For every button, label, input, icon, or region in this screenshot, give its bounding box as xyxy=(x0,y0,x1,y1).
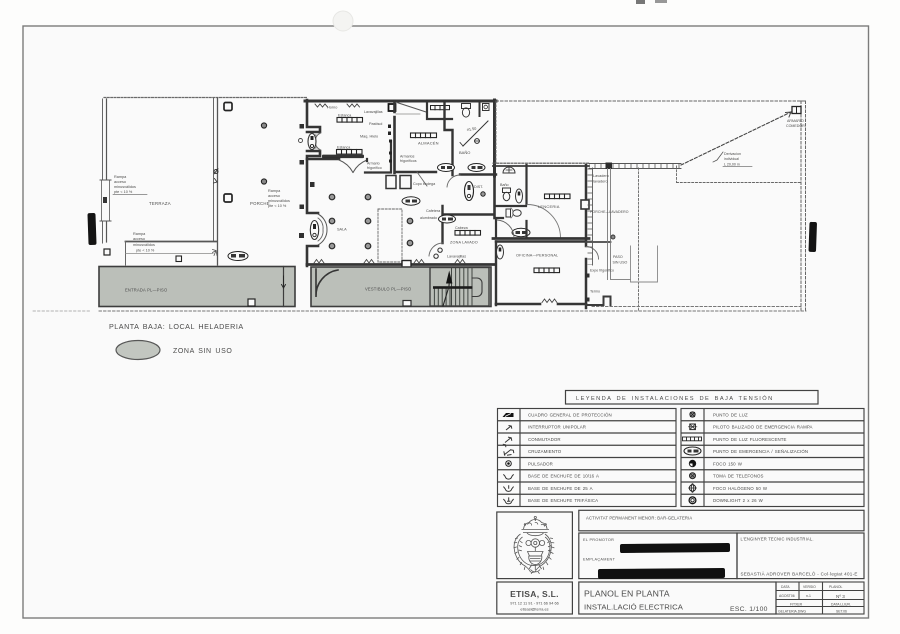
svg-text:INTERRUPTOR UNIPOLAR: INTERRUPTOR UNIPOLAR xyxy=(528,425,586,430)
svg-text:Rampa: Rampa xyxy=(114,175,127,179)
svg-text:acceso: acceso xyxy=(114,180,126,184)
svg-text:pte < 10 %: pte < 10 % xyxy=(268,204,287,208)
svg-text:ZONA SIN USO: ZONA SIN USO xyxy=(173,348,232,355)
svg-text:971 12 11 91 - 971 66 94 66: 971 12 11 91 - 971 66 94 66 xyxy=(510,600,559,605)
svg-text:FOCO HALÓGENO 50 W: FOCO HALÓGENO 50 W xyxy=(713,486,768,491)
svg-text:SEBASTIÀ ADROVER BARCELÓ - Col: SEBASTIÀ ADROVER BARCELÓ - Col·legiat 40… xyxy=(741,571,858,577)
svg-text:ACTIVITAT PERMANENT MENOR: BAR: ACTIVITAT PERMANENT MENOR: BAR-GELATERIA xyxy=(586,516,692,521)
svg-text:PULSADOR: PULSADOR xyxy=(528,461,553,466)
svg-text:CRUZAMIENTO: CRUZAMIENTO xyxy=(528,449,562,454)
svg-text:minusválidos: minusválidos xyxy=(114,185,136,189)
svg-text:DATA: DATA xyxy=(781,585,790,589)
svg-text:SET.06: SET.06 xyxy=(836,610,847,614)
svg-text:BAÑO: BAÑO xyxy=(459,150,470,155)
svg-text:Termo: Termo xyxy=(590,290,600,294)
svg-text:ESC. 1/100: ESC. 1/100 xyxy=(730,606,768,613)
svg-text:Armario: Armario xyxy=(367,162,380,166)
svg-text:ARMARIO: ARMARIO xyxy=(787,119,804,123)
svg-text:ENTRADA PL—PISO: ENTRADA PL—PISO xyxy=(125,288,167,293)
svg-text:PILOTO BALIZADO DE EMERGENCIA: PILOTO BALIZADO DE EMERGENCIA RAMPA xyxy=(713,425,813,430)
svg-text:individual: individual xyxy=(724,157,739,161)
svg-text:LEYENDA DE INSTALACIONES DE BA: LEYENDA DE INSTALACIONES DE BAJA TENSIÓN xyxy=(576,395,774,402)
svg-text:ETISA, S.L.: ETISA, S.L. xyxy=(510,589,559,599)
svg-text:pte < 10 %: pte < 10 % xyxy=(136,249,155,253)
svg-text:BASE DE ENCHUFE DE 10/16 A: BASE DE ENCHUFE DE 10/16 A xyxy=(528,474,599,479)
svg-text:Cabeza: Cabeza xyxy=(455,226,469,230)
svg-text:DIST.: DIST. xyxy=(474,185,483,189)
svg-text:Rampa: Rampa xyxy=(133,232,146,236)
svg-text:PLANOL EN PLANTA: PLANOL EN PLANTA xyxy=(584,589,670,599)
svg-text:VERSIO: VERSIO xyxy=(803,585,816,589)
svg-text:Lavavajillas: Lavavajillas xyxy=(447,255,466,259)
svg-text:FITXER: FITXER xyxy=(790,603,803,607)
svg-text:L 20,00 m: L 20,00 m xyxy=(724,163,740,167)
svg-text:Rampa: Rampa xyxy=(268,189,281,193)
svg-text:Lavavajillas: Lavavajillas xyxy=(364,110,383,114)
svg-text:n-1: n-1 xyxy=(806,594,811,598)
svg-text:LENCERIA: LENCERIA xyxy=(538,204,560,209)
svg-text:PLANOL: PLANOL xyxy=(829,585,842,589)
svg-text:INSTAL.LACIÓ ELECTRICA: INSTAL.LACIÓ ELECTRICA xyxy=(584,603,684,612)
svg-text:CONMUTADOR: CONMUTADOR xyxy=(528,437,561,442)
svg-text:lavadero: lavadero xyxy=(593,180,608,184)
svg-text:Maq. Hielo: Maq. Hielo xyxy=(360,135,378,139)
svg-text:PUNTO DE LUZ: PUNTO DE LUZ xyxy=(713,412,748,417)
svg-text:minusválidos: minusválidos xyxy=(268,199,290,203)
svg-text:etisasl@terra.es: etisasl@terra.es xyxy=(520,607,548,612)
svg-text:Horno: Horno xyxy=(327,106,337,110)
svg-text:PORCHE: PORCHE xyxy=(250,201,270,206)
svg-text:Derivacion: Derivacion xyxy=(724,152,741,156)
svg-text:GELATERIA.DWG: GELATERIA.DWG xyxy=(778,610,806,614)
svg-text:PUNTO DE EMERGENCIA / SEÑALIZA: PUNTO DE EMERGENCIA / SEÑALIZACIÓN xyxy=(713,449,808,454)
svg-text:acceso: acceso xyxy=(268,194,280,198)
svg-text:TERRAZA: TERRAZA xyxy=(149,201,171,206)
svg-text:Nº 3: Nº 3 xyxy=(836,594,845,599)
svg-text:PASO: PASO xyxy=(613,255,623,259)
svg-text:Expe frigorífico: Expe frigorífico xyxy=(590,269,614,273)
svg-text:VESTIBULO PL—PISO: VESTIBULO PL—PISO xyxy=(365,287,411,292)
svg-text:EMPLAÇAMENT: EMPLAÇAMENT xyxy=(583,558,616,562)
svg-text:Baño: Baño xyxy=(500,183,509,187)
svg-text:Armarios: Armarios xyxy=(400,155,415,159)
svg-text:Lavadero: Lavadero xyxy=(593,174,609,178)
svg-text:PUNTO DE LUZ FLUORESCENTE: PUNTO DE LUZ FLUORESCENTE xyxy=(713,437,787,442)
svg-text:frigoríficos: frigoríficos xyxy=(400,159,417,163)
svg-text:EL PROMOTOR: EL PROMOTOR xyxy=(583,538,614,542)
svg-text:BASE DE ENCHUFE TRIFÁSICA: BASE DE ENCHUFE TRIFÁSICA xyxy=(528,498,598,503)
svg-text:BASE DE ENCHUFE DE 25 A: BASE DE ENCHUFE DE 25 A xyxy=(528,486,593,491)
svg-text:TOMA DE TELEFONOS: TOMA DE TELEFONOS xyxy=(713,474,764,479)
svg-text:PLANTA BAJA: LOCAL HELADERIA: PLANTA BAJA: LOCAL HELADERIA xyxy=(109,322,244,331)
svg-text:Estanca: Estanca xyxy=(337,146,351,150)
svg-text:Estanca: Estanca xyxy=(338,114,352,118)
svg-text:OFICINA—PERSONAL: OFICINA—PERSONAL xyxy=(516,254,558,258)
svg-text:SIN USO: SIN USO xyxy=(613,261,628,265)
svg-text:SALA: SALA xyxy=(337,228,347,232)
svg-text:frigorífico: frigorífico xyxy=(367,166,382,170)
svg-text:alumbrado: alumbrado xyxy=(420,216,437,220)
svg-text:AGOST06: AGOST06 xyxy=(779,594,795,598)
svg-text:ZONA LAVADO: ZONA LAVADO xyxy=(450,241,478,245)
svg-text:COMEDOR: COMEDOR xyxy=(786,124,805,128)
svg-text:minusválidos: minusválidos xyxy=(133,243,155,247)
svg-text:Pastisol: Pastisol xyxy=(369,122,382,126)
svg-text:pte < 10 %: pte < 10 % xyxy=(114,190,133,194)
svg-text:L'ENGINYER TECNIC INDUSTRIAL: L'ENGINYER TECNIC INDUSTRIAL. xyxy=(741,537,814,542)
svg-text:acceso: acceso xyxy=(133,237,145,241)
svg-text:DATA LLIUR.: DATA LLIUR. xyxy=(831,603,851,607)
svg-text:FOCO 150 W: FOCO 150 W xyxy=(713,461,743,466)
svg-text:ALMACÉN: ALMACÉN xyxy=(418,141,439,146)
svg-text:Copo bodega: Copo bodega xyxy=(413,182,436,186)
svg-text:PORCHE—LAVADERO: PORCHE—LAVADERO xyxy=(590,210,629,214)
svg-text:CUADRO GENERAL DE PROTECCIÓN: CUADRO GENERAL DE PROTECCIÓN xyxy=(528,412,612,417)
svg-text:DOWNLIGHT 2 x 26 W: DOWNLIGHT 2 x 26 W xyxy=(713,498,764,503)
svg-text:Cafetera: Cafetera xyxy=(426,209,441,213)
